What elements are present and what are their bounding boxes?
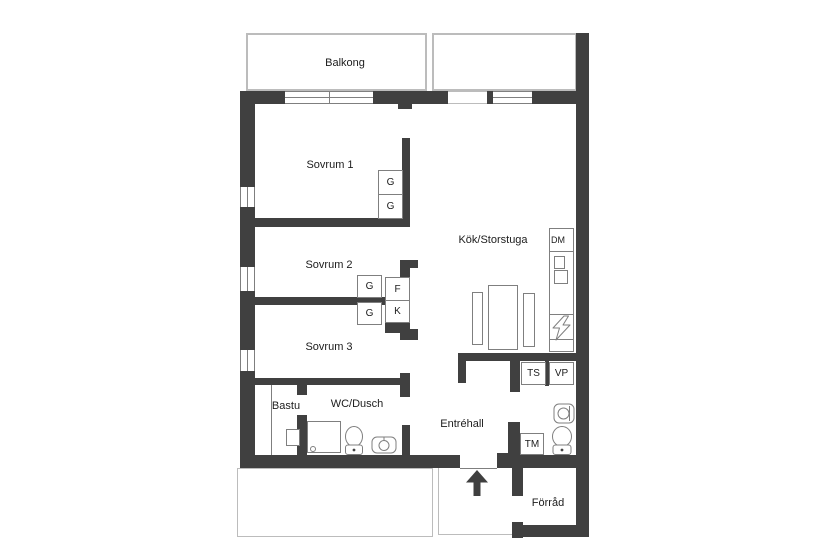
wall-kitchen-corner (458, 353, 466, 383)
room-label-storage: Förråd (532, 497, 564, 509)
fridge-label: K (394, 306, 401, 317)
washing-machine-box: TM (520, 433, 544, 455)
wardrobe-label: G (387, 177, 395, 188)
drying-cabinet-box: TS (521, 362, 546, 385)
room-label-entry-hall: Entréhall (440, 418, 483, 430)
wall-bedroom1-bottom (255, 218, 410, 227)
wardrobe-label: G (366, 308, 374, 319)
room-label-bedroom1: Sovrum 1 (306, 159, 353, 171)
bench-left (472, 292, 483, 345)
wall-bedroom1-right (402, 138, 410, 226)
kitchen-counter: DM (549, 228, 574, 352)
wall-closet-lower-flange (400, 329, 418, 340)
shower-drain (310, 446, 316, 452)
window-left-bedroom1 (240, 187, 255, 207)
dining-table (488, 285, 518, 350)
wall-entrybath-jamb (510, 353, 520, 392)
room-label-bedroom3: Sovrum 3 (305, 341, 352, 353)
sauna-partition-line (271, 385, 272, 455)
wall-bedroom3-bottom (250, 378, 405, 385)
toilet-icon (551, 426, 573, 456)
counter-divider (550, 251, 573, 252)
entrance-arrow-icon (465, 470, 489, 496)
wall-entrybath-lower (508, 422, 520, 468)
room-label-bathroom: WC/Dusch (331, 398, 384, 410)
kitchen-sink-basin-small (554, 256, 565, 269)
wall-exterior-right (576, 33, 589, 537)
wall-top-door-jamb (398, 104, 412, 109)
balcony-door-opening (448, 91, 487, 104)
shower (307, 421, 341, 453)
kitchen-sink-basin-large (554, 270, 568, 284)
room-label-sauna: Bastu (272, 400, 300, 412)
freezer-box: F (385, 277, 410, 301)
toilet-icon (344, 426, 364, 456)
wall-bedroom3-right-stub (400, 373, 410, 397)
freezer-label: F (394, 284, 400, 295)
wardrobe-label: G (366, 281, 374, 292)
wardrobe-box-bedroom1-a: G (378, 170, 403, 195)
sauna-heater-icon (286, 429, 300, 446)
washing-machine-label: TM (525, 439, 539, 450)
wardrobe-box-bedroom2: G (357, 275, 382, 298)
patio-outline (237, 468, 433, 537)
wall-bathroom-right (402, 425, 410, 457)
window-left-bedroom2 (240, 267, 255, 291)
window-top-bedroom1 (285, 91, 373, 104)
wardrobe-box-bedroom1-b: G (378, 194, 403, 219)
wall-storage-bottom (512, 525, 589, 537)
stove-icon (551, 315, 573, 341)
fridge-box: K (385, 300, 410, 323)
dishwasher-label: DM (551, 235, 565, 245)
bench-right (523, 293, 535, 347)
wardrobe-label: G (387, 201, 395, 212)
drying-cabinet-label: TS (527, 368, 540, 379)
sink-icon (371, 436, 397, 454)
sink-icon (553, 403, 575, 424)
wardrobe-box-bedroom3: G (357, 302, 382, 325)
room-label-kitchen-living: Kök/Storstuga (458, 234, 527, 246)
front-door-opening (460, 455, 497, 469)
heat-pump-box: VP (549, 362, 574, 385)
room-label-balcony: Balkong (325, 57, 365, 69)
wall-closet-upper-flange (400, 260, 418, 268)
heat-pump-label: VP (555, 368, 568, 379)
floor-plan: G G G G F K TS VP TM DM (0, 0, 831, 555)
balcony-outline-right (432, 33, 577, 91)
window-left-bedroom3 (240, 350, 255, 371)
window-top-kitchen (493, 91, 532, 104)
wall-sauna-door-jamb (297, 378, 307, 395)
room-label-bedroom2: Sovrum 2 (305, 259, 352, 271)
wall-storage-left-upper (512, 468, 523, 496)
